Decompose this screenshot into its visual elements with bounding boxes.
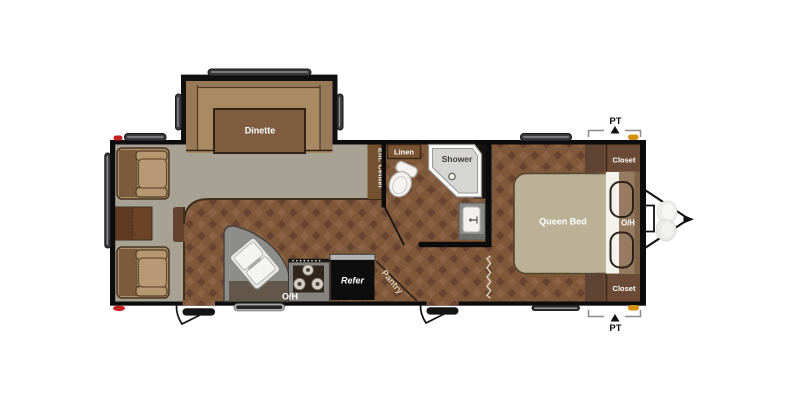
svg-text:Closet: Closet — [613, 284, 636, 293]
svg-text:O/H: O/H — [621, 219, 635, 228]
svg-text:Shower: Shower — [442, 154, 473, 164]
svg-text:Dinette: Dinette — [245, 126, 276, 136]
svg-text:O/H: O/H — [282, 292, 298, 302]
svg-text:Closet: Closet — [613, 156, 636, 165]
svg-text:PT: PT — [609, 323, 621, 334]
svg-text:PT: PT — [609, 116, 621, 127]
svg-text:Refer: Refer — [341, 276, 365, 286]
svg-text:Queen Bed: Queen Bed — [539, 217, 587, 227]
svg-text:Linen: Linen — [394, 148, 414, 157]
